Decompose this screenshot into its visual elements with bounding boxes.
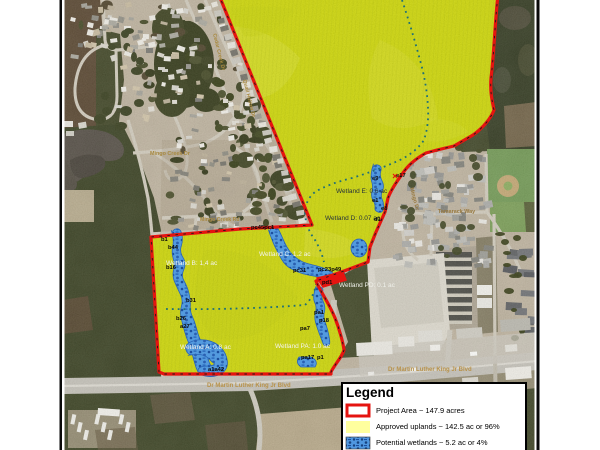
svg-text:b31: b31 bbox=[186, 298, 197, 304]
svg-text:e17: e17 bbox=[396, 173, 406, 179]
svg-text:e1: e1 bbox=[372, 198, 379, 204]
svg-text:e8: e8 bbox=[381, 206, 388, 212]
svg-text:pc23p49: pc23p49 bbox=[318, 267, 342, 273]
svg-text:p1: p1 bbox=[317, 355, 325, 361]
svg-text:Project Area ~ 147.9 acres: Project Area ~ 147.9 acres bbox=[376, 406, 465, 415]
svg-text:a1a42: a1a42 bbox=[208, 367, 224, 373]
svg-text:b44: b44 bbox=[168, 245, 179, 251]
svg-text:Dr Martin Luther King Jr Blvd: Dr Martin Luther King Jr Blvd bbox=[388, 367, 472, 373]
svg-text:pa17: pa17 bbox=[301, 355, 314, 361]
svg-text:pc31: pc31 bbox=[293, 268, 307, 274]
svg-text:Approved uplands ~ 142.5 ac or: Approved uplands ~ 142.5 ac or 96% bbox=[376, 422, 500, 431]
svg-text:Potential wetlands ~ 5.2 ac or: Potential wetlands ~ 5.2 ac or 4% bbox=[376, 438, 488, 447]
svg-text:b16: b16 bbox=[166, 265, 177, 271]
svg-text:pd1: pd1 bbox=[322, 280, 333, 286]
svg-text:b26: b26 bbox=[176, 316, 187, 322]
svg-text:pa1: pa1 bbox=[314, 310, 325, 316]
svg-text:Wetland D: 0.07 ac: Wetland D: 0.07 ac bbox=[325, 215, 381, 222]
svg-text:pa7: pa7 bbox=[300, 326, 310, 332]
svg-text:Tamarack Way: Tamarack Way bbox=[438, 209, 475, 215]
svg-text:pc45pc1: pc45pc1 bbox=[251, 225, 275, 231]
svg-text:Legend: Legend bbox=[346, 385, 394, 400]
svg-text:Wetland E: 0.6 ac: Wetland E: 0.6 ac bbox=[336, 188, 388, 195]
svg-text:e9: e9 bbox=[372, 176, 379, 182]
svg-text:Wetland C: 1.2 ac: Wetland C: 1.2 ac bbox=[259, 251, 311, 258]
svg-text:Wetland A: 0.8 ac: Wetland A: 0.8 ac bbox=[180, 344, 232, 351]
svg-text:b1: b1 bbox=[161, 237, 169, 243]
svg-text:Wetland PD: 0.1 ac: Wetland PD: 0.1 ac bbox=[339, 282, 396, 289]
svg-text:d1: d1 bbox=[374, 217, 382, 223]
svg-text:Wetland PA: 1.0 ac: Wetland PA: 1.0 ac bbox=[275, 343, 331, 350]
svg-text:Mingo Creek Rd: Mingo Creek Rd bbox=[200, 217, 240, 223]
svg-text:a27: a27 bbox=[180, 324, 190, 330]
svg-text:Mingo Creek Dr: Mingo Creek Dr bbox=[150, 151, 191, 157]
svg-text:p18: p18 bbox=[319, 318, 330, 324]
svg-text:Dr Martin Luther King Jr Blvd: Dr Martin Luther King Jr Blvd bbox=[207, 383, 291, 389]
